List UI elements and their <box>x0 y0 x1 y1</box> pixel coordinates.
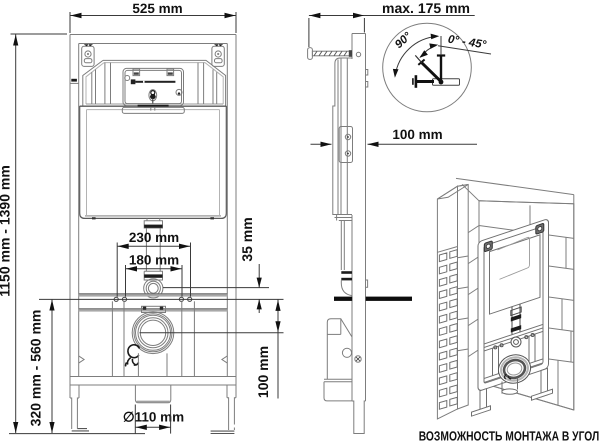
svg-text:1150 mm - 1390 mm: 1150 mm - 1390 mm <box>0 165 13 297</box>
svg-text:230 mm: 230 mm <box>129 230 179 245</box>
svg-text:ВОЗМОЖНОСТЬ МОНТАЖА В УГОЛ: ВОЗМОЖНОСТЬ МОНТАЖА В УГОЛ <box>419 429 599 442</box>
svg-text:525 mm: 525 mm <box>132 1 182 16</box>
svg-text:100 mm: 100 mm <box>255 346 271 398</box>
svg-text:180 mm: 180 mm <box>129 253 179 268</box>
svg-text:100 mm: 100 mm <box>392 127 442 142</box>
svg-text:320 mm - 560 mm: 320 mm - 560 mm <box>28 310 44 427</box>
svg-text:35 mm: 35 mm <box>239 217 255 261</box>
svg-text:max. 175 mm: max. 175 mm <box>382 0 470 16</box>
svg-text:∅110 mm: ∅110 mm <box>123 410 184 425</box>
